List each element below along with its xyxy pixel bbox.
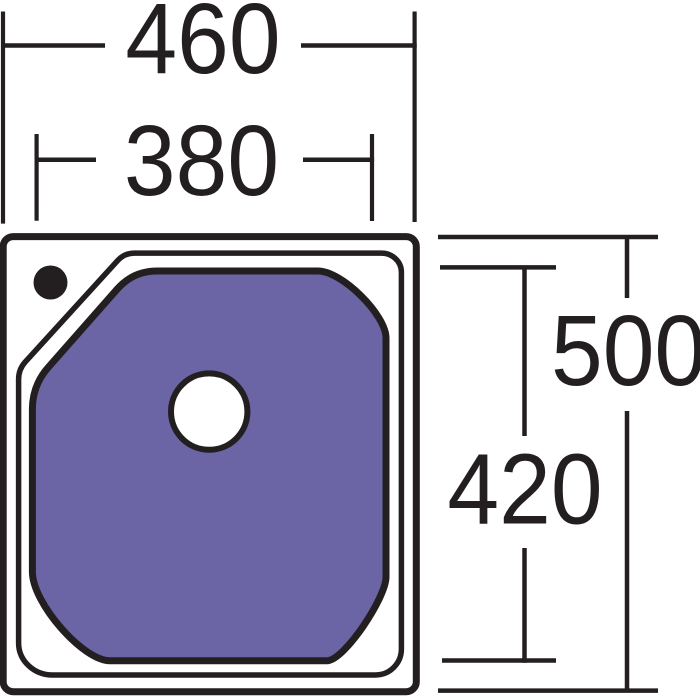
svg-text:500: 500: [551, 296, 700, 407]
svg-text:380: 380: [124, 106, 279, 217]
svg-text:420: 420: [447, 434, 602, 545]
svg-text:460: 460: [125, 0, 280, 95]
